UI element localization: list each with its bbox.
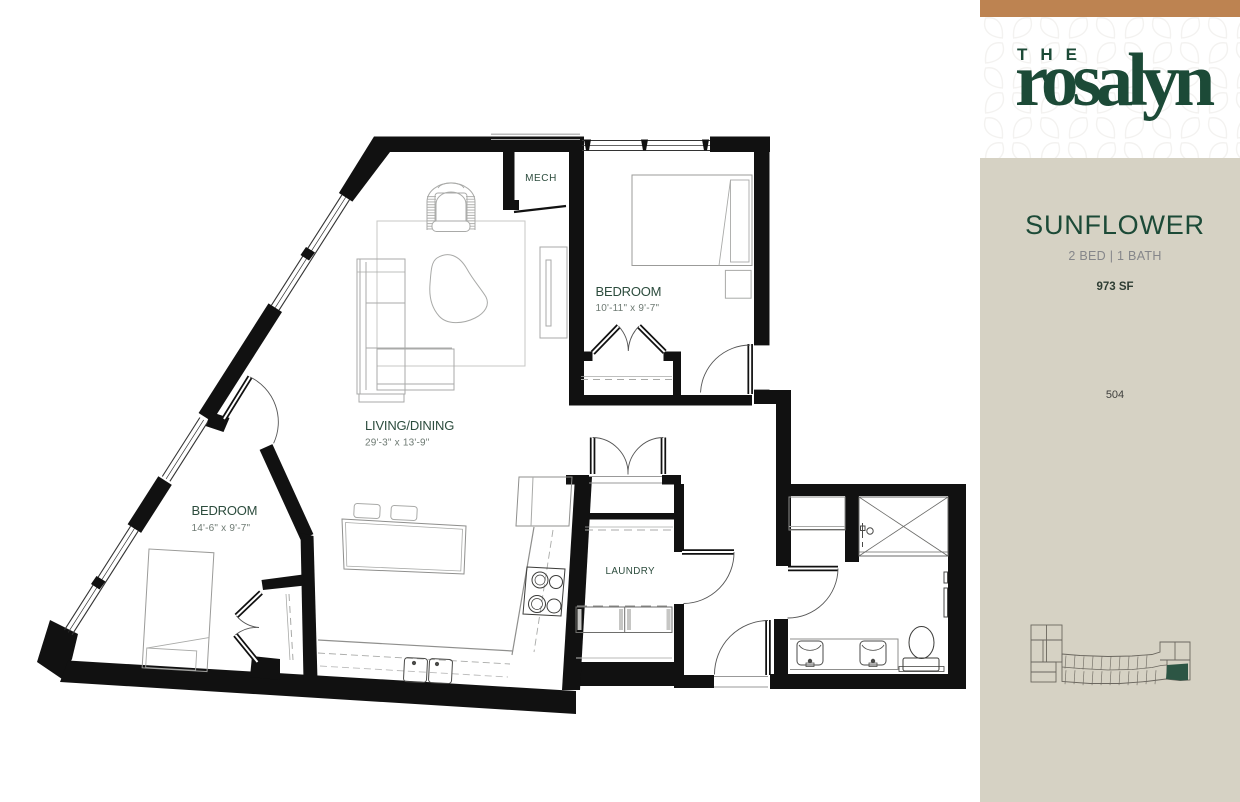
svg-text:MECH: MECH bbox=[525, 173, 557, 184]
svg-text:LAUNDRY: LAUNDRY bbox=[606, 566, 656, 577]
svg-text:rosalyn: rosalyn bbox=[1015, 39, 1214, 122]
svg-text:BEDROOM: BEDROOM bbox=[192, 503, 258, 518]
svg-text:29'-3" x 13'-9": 29'-3" x 13'-9" bbox=[365, 438, 430, 449]
svg-text:14'-6" x 9'-7": 14'-6" x 9'-7" bbox=[192, 523, 251, 534]
svg-text:LIVING/DINING: LIVING/DINING bbox=[365, 418, 454, 433]
svg-text:10'-11" x 9'-7": 10'-11" x 9'-7" bbox=[596, 303, 660, 314]
svg-text:BEDROOM: BEDROOM bbox=[596, 284, 662, 299]
